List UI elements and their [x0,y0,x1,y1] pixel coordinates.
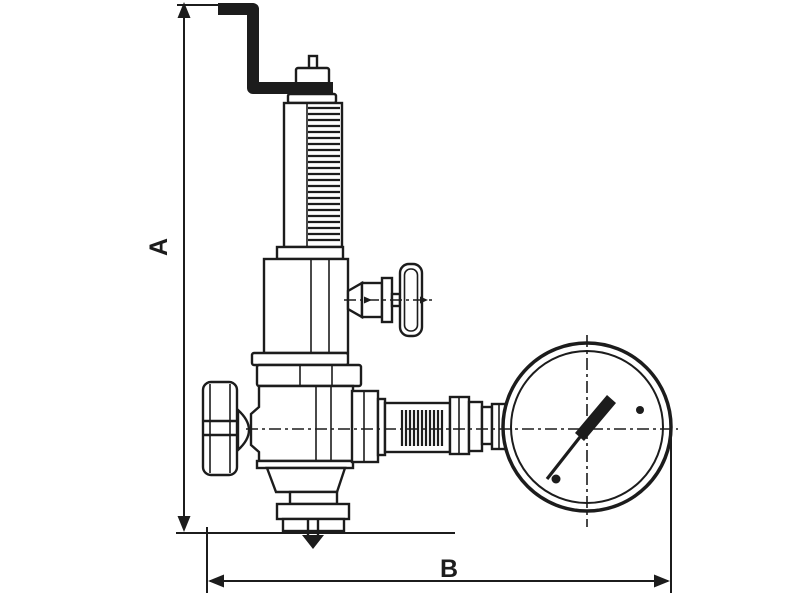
outlet-fittings [352,391,513,462]
technical-drawing: A B [0,0,800,598]
arrow-left-icon [208,575,224,588]
arrow-down-flow-icon [302,535,324,549]
outlet-flange-ring-2 [283,519,344,531]
outlet-neck [290,492,337,504]
dimension-b-label: B [440,555,458,583]
knob-body [203,382,237,475]
bonnet [264,259,348,353]
knob-dome-cap [238,410,249,450]
arrow-right-icon [654,575,670,588]
flange-plate-lower [257,365,361,386]
outlet-boss [352,391,378,462]
valve-assembly [203,9,513,549]
gauge-screw-dot [636,406,644,414]
outlet-flange-ring-1 [277,504,349,519]
dimension-a-label: A [145,238,173,256]
body-lower-taper [267,468,345,492]
inlet-knob [203,382,249,475]
valve-body [251,386,353,461]
flange-plate-upper [252,353,348,365]
valve-diagram-svg: A B [0,0,800,598]
housing-base-collar [277,247,343,259]
stem-collar [288,94,336,103]
needle-counterweight-dot [552,475,561,484]
arrow-down-icon [178,516,191,532]
pipe-nipple [482,407,492,444]
pipe-band [469,402,482,451]
tee-centerline-arrow-2-icon [420,297,428,304]
